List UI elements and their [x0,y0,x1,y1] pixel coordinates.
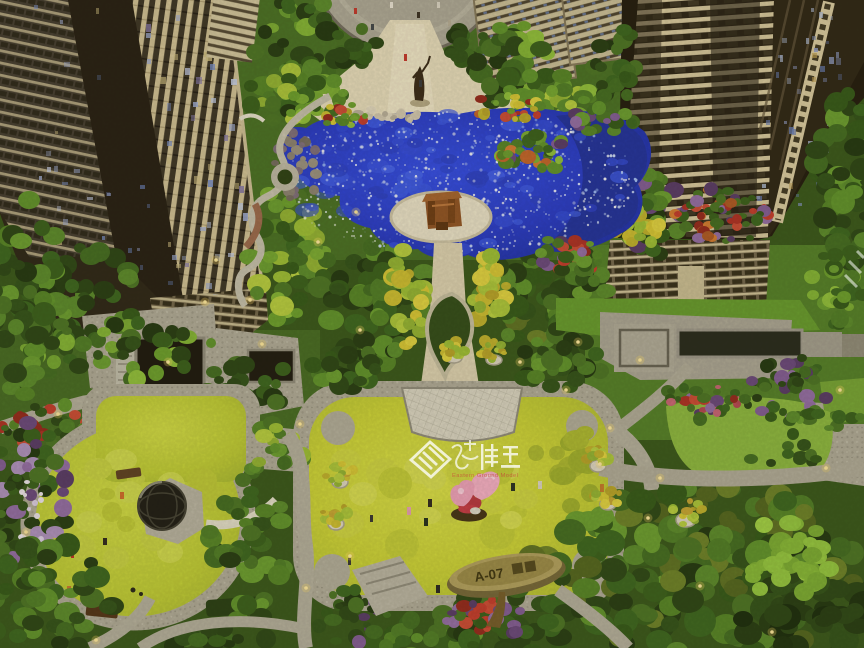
svg-text:Eastern Ground Model: Eastern Ground Model [452,473,518,479]
